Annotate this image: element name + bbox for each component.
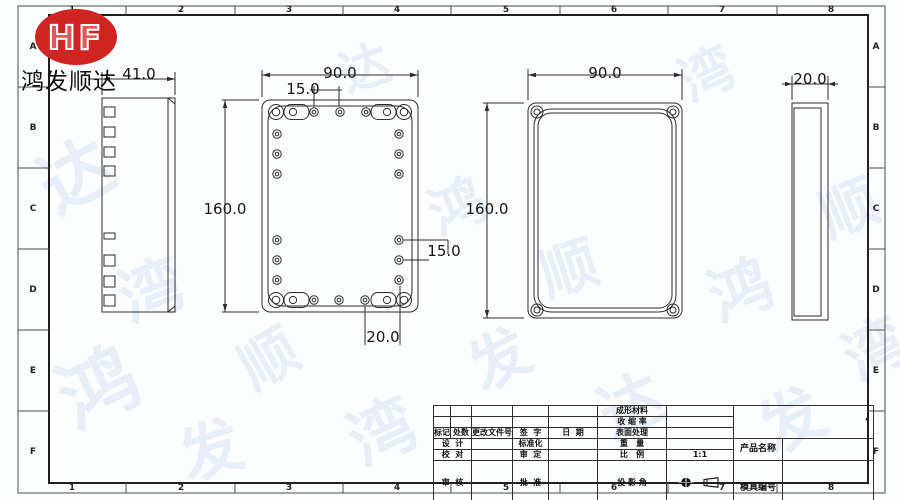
tb-standardization-label: 标准化 xyxy=(513,439,549,450)
company-logo-text: HF xyxy=(48,18,104,57)
zone-row-right: A xyxy=(873,42,880,52)
zone-row-right: E xyxy=(873,366,879,376)
company-name: 鸿发顺达 xyxy=(21,62,117,96)
tb-scale-value: 1:1 xyxy=(667,450,734,461)
tb-molding-material-label: 成形材料 xyxy=(598,406,667,417)
tb-scale-label: 比 例 xyxy=(598,450,667,461)
zone-col-bottom: 3 xyxy=(286,483,292,493)
tb-empty xyxy=(513,406,549,417)
tb-proofread-value xyxy=(472,450,513,461)
tb-shrinkage-value xyxy=(667,417,734,428)
tb-empty xyxy=(434,417,451,428)
tb-count-label: 处数 xyxy=(451,428,472,439)
tb-surface-value xyxy=(667,428,734,439)
zone-row-right: C xyxy=(873,204,880,214)
tb-ratify-label: 批 准 xyxy=(513,461,549,500)
zone-col-top: 4 xyxy=(394,5,400,15)
tb-date-label: 日 期 xyxy=(549,428,598,439)
tb-review-value xyxy=(472,461,513,500)
view-base-front xyxy=(222,70,448,345)
tb-design-label: 设 计 xyxy=(434,439,472,450)
zone-col-top: 7 xyxy=(719,5,725,15)
tb-review-label: 审 核 xyxy=(434,461,472,500)
tb-mold-number-value xyxy=(783,461,874,500)
tb-note-cell: ’ xyxy=(734,406,874,439)
tb-shrinkage-label: 收 缩 率 xyxy=(598,417,667,428)
dim-base-side-width: 41.0 xyxy=(116,65,162,83)
tb-design-value xyxy=(472,439,513,450)
dim-hole-pitch-bottom: 20.0 xyxy=(360,328,406,346)
zone-row-right: D xyxy=(872,285,879,295)
view-lid-front xyxy=(483,69,682,318)
view-lid-side xyxy=(782,76,838,320)
zone-col-top: 3 xyxy=(286,5,292,15)
tb-approval-value xyxy=(549,450,598,461)
zone-row-left: F xyxy=(30,447,36,457)
tb-change-doc-label: 更改文件号 xyxy=(472,428,513,439)
dim-hole-pitch-side: 15.0 xyxy=(421,242,467,260)
tb-ratify-value xyxy=(549,461,598,500)
view-base-side xyxy=(88,72,175,312)
tb-surface-label: 表面处理 xyxy=(598,428,667,439)
tb-product-name-label: 产品名称 xyxy=(734,439,783,461)
dim-hole-pitch-top: 15.0 xyxy=(280,80,326,98)
tb-projection-symbols xyxy=(667,461,734,500)
dim-lid-width: 90.0 xyxy=(582,64,628,82)
tb-mold-number-label: 模具编号 xyxy=(734,461,783,500)
zone-col-top: 6 xyxy=(611,5,617,15)
tb-empty xyxy=(451,417,472,428)
tb-projection-label: 投 影 角 xyxy=(598,461,667,500)
title-block: 成形材料 ’ 收 缩 率 标记 处数 更改文件号 签 字 日 期 表面处理 设 … xyxy=(433,405,874,500)
zone-col-bottom: 4 xyxy=(394,483,400,493)
zone-col-bottom: 2 xyxy=(178,483,184,493)
zone-row-left: D xyxy=(29,285,36,295)
zone-row-right: B xyxy=(873,123,880,133)
zone-row-left: B xyxy=(30,123,37,133)
drawing-sheet: 达 湾 鸿 发 顺 达 湾 鸿 发 顺 达 湾 鸿 发 顺 湾 xyxy=(0,0,900,500)
tb-product-name-value xyxy=(783,439,874,461)
dim-lid-side-width: 20.0 xyxy=(787,70,833,88)
tb-empty xyxy=(451,406,472,417)
tb-empty xyxy=(549,406,598,417)
tb-proofread-label: 校 对 xyxy=(434,450,472,461)
first-angle-projection-icon xyxy=(674,477,726,488)
zone-col-top: 8 xyxy=(828,5,834,15)
dim-base-height: 160.0 xyxy=(202,200,248,218)
tb-molding-material-value xyxy=(667,406,734,417)
tb-empty xyxy=(472,406,513,417)
tb-mark-label: 标记 xyxy=(434,428,451,439)
zone-col-top: 5 xyxy=(503,5,509,15)
company-logo: HF xyxy=(35,9,117,65)
zone-row-left: E xyxy=(30,366,36,376)
tb-signature-label: 签 字 xyxy=(513,428,549,439)
tb-standardization-value xyxy=(549,439,598,450)
tb-weight-label: 重 量 xyxy=(598,439,667,450)
zone-col-top: 2 xyxy=(178,5,184,15)
zone-row-left: C xyxy=(30,204,37,214)
tb-empty xyxy=(434,406,451,417)
tb-weight-value xyxy=(667,439,734,450)
tb-approval-label: 审 定 xyxy=(513,450,549,461)
dim-lid-height: 160.0 xyxy=(464,200,510,218)
zone-col-bottom: 1 xyxy=(69,483,75,493)
tb-empty xyxy=(472,417,513,428)
tb-empty xyxy=(549,417,598,428)
tb-empty xyxy=(513,417,549,428)
